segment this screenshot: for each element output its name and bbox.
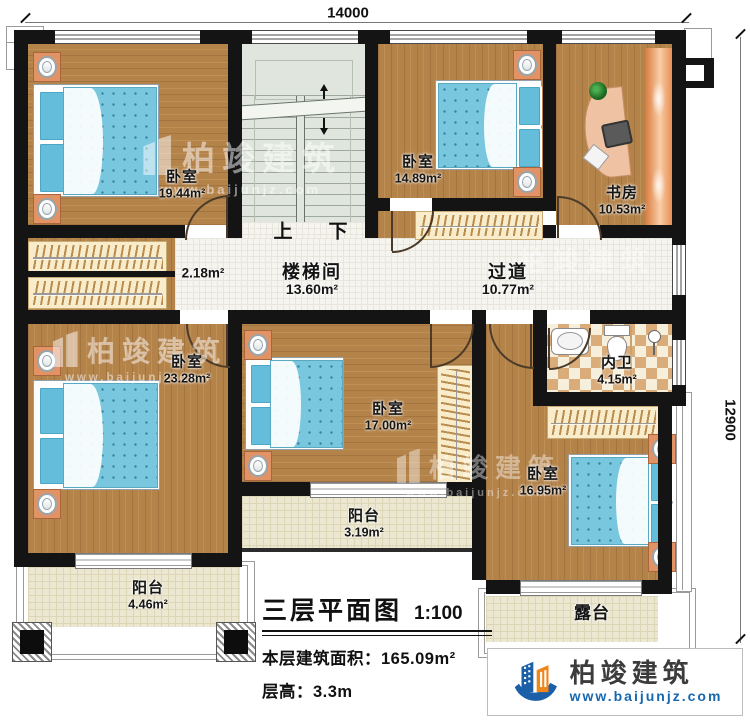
wall [378,198,390,211]
room-name: 露台 [574,603,610,622]
watermark-text: 柏竣建筑 [182,132,342,180]
watermark-url: www.baijunjz.com [515,281,658,293]
wall [228,310,430,324]
mattress [571,457,649,545]
watermark-logo-icon [394,449,422,485]
room-area: 19.44m² [159,186,206,200]
wall [365,44,378,238]
wall [590,310,686,324]
lamp-icon [37,493,57,515]
stair-up-label: 上 [273,217,292,244]
shower-head-icon [648,330,661,343]
watermark-logo-icon [50,331,80,369]
floor-area-value: 165.09m² [381,650,456,668]
watermark-text: 柏竣建筑 [518,240,654,279]
room-area: 4.46m² [128,597,168,611]
balcony-column [12,622,52,662]
toilet-tank [604,325,630,336]
lamp-icon [517,171,537,193]
terrace-railing-inner [484,592,690,654]
terrace-side-railing [676,392,692,592]
wall [533,392,686,406]
room-label-bedroom-left: 卧室 23.28m² [164,355,211,386]
floor-area-line: 本层建筑面积：165.09m² [262,645,492,669]
dimension-right-value: 12900 [722,396,739,444]
nightstand [513,50,541,80]
lamp-icon [37,198,57,220]
dimension-top-value: 14000 [324,5,372,22]
plan-scale: 1:100 [414,603,463,625]
room-area: 23.28m² [164,371,211,385]
stair-arrow-up-stem [323,86,325,99]
room-area: 4.15m² [597,372,637,386]
dimension-line-top [25,22,689,23]
room-name: 内卫 [597,356,637,373]
room-name: 阳台 [128,581,168,598]
wall [28,271,175,277]
terrace-side-railing-line [682,392,683,590]
wall [14,310,180,324]
window [55,30,200,44]
shower-cord [653,342,655,355]
room-label-study: 书房 10.53m² [599,186,646,217]
pillow [38,386,66,436]
wall [472,310,486,324]
wall [432,198,543,211]
wall [533,310,547,324]
lamp-icon [517,54,537,76]
room-label-hall: 2.18m² [182,265,225,280]
wall [543,225,556,238]
wall [14,30,28,567]
bed-topright [435,80,542,170]
study-cabinet [645,48,672,229]
door-leaf [548,328,550,368]
wall [28,225,185,238]
wall [658,406,672,594]
room-name: 卧室 [159,170,206,187]
bed-left [33,380,160,490]
mattress [438,83,517,168]
wall [242,482,310,496]
window [562,30,655,44]
title-underline [262,630,492,636]
dimension-line-right [740,37,741,643]
plan-title: 三层平面图 [262,591,402,627]
chimney-box-inner [686,65,704,81]
room-label-stairwell: 楼梯间 13.60m² [282,262,342,298]
room-name: 楼梯间 [282,262,342,282]
room-label-balcony-left: 阳台 4.46m² [128,581,168,612]
room-area: 16.95m² [520,483,567,497]
floor-height-value: 3.3m [313,683,353,701]
pillow [517,127,542,169]
stair-landing-outline [255,60,353,100]
company-logo-text: 柏竣建筑 www.baijunjz.com [570,660,723,703]
wall [14,553,75,567]
pillow [517,85,542,127]
floor-height-line: 层高：3.3m [262,678,492,702]
room-name: 书房 [599,186,646,203]
stair-down-label: 下 [328,217,347,244]
room-name: 阳台 [344,509,384,526]
company-logo: 柏竣建筑 www.baijunjz.com [487,648,743,716]
door-leaf [391,211,393,251]
room-name: 卧室 [164,355,211,372]
door-leaf [557,196,559,238]
window [390,30,527,44]
company-logo-icon [508,655,562,709]
nightstand [33,52,61,82]
window [672,245,686,295]
room-label-bedroom-topright: 卧室 14.89m² [395,155,442,186]
wall [600,225,672,238]
room-label-bathroom: 内卫 4.15m² [597,356,637,387]
room-area: 3.19m² [344,525,384,539]
bed-center [245,357,344,450]
nightstand [244,330,272,360]
wall [543,44,556,211]
room-name: 卧室 [520,467,567,484]
room-area: 2.18m² [182,265,225,280]
sliding-door [520,580,642,596]
room-name: 卧室 [365,402,412,419]
wardrobe-left-2 [28,277,167,309]
room-area: 10.77m² [482,282,534,298]
nightstand [33,489,61,519]
balcony-center-railing [242,548,472,552]
pillow [38,90,66,142]
balcony-column [216,622,256,662]
company-name: 柏竣建筑 [570,660,723,687]
pillow [38,436,66,486]
wall [190,553,242,567]
door-leaf [530,324,532,367]
watermark: 柏竣建筑 www.baijunjz.com [515,240,658,293]
lamp-icon [248,455,268,477]
sliding-door [75,553,192,569]
wardrobe-bedroom-right [547,406,660,439]
window [252,30,358,44]
company-website: www.baijunjz.com [570,688,723,704]
nightstand [513,167,541,197]
room-area: 13.60m² [282,282,342,298]
room-label-bedroom-right: 卧室 16.95m² [520,467,567,498]
pillow [38,142,66,194]
door-leaf [430,324,432,366]
floor-height-label: 层高： [262,683,313,701]
wardrobe-bedroom-topright [415,211,543,240]
room-label-bedroom-center: 卧室 17.00m² [365,402,412,433]
room-label-corridor: 过道 10.77m² [482,262,534,298]
lamp-icon [37,56,57,78]
wardrobe-left-1 [28,241,167,273]
room-name: 卧室 [395,155,442,172]
mattress [63,383,158,488]
room-label-terrace: 露台 [574,603,610,622]
room-area: 10.53m² [599,202,646,216]
room-area: 17.00m² [365,418,412,432]
mattress [270,360,343,448]
door-leaf [226,195,228,238]
room-area: 14.89m² [395,171,442,185]
floor-area-label: 本层建筑面积： [262,650,381,668]
window [672,340,686,385]
nightstand [33,194,61,224]
room-label-balcony-center: 阳台 3.19m² [344,509,384,540]
floor-plan-canvas: 上 下 [0,0,750,720]
title-block: 三层平面图 1:100 本层建筑面积：165.09m² 层高：3.3m [262,591,492,702]
nightstand [244,451,272,481]
room-name: 过道 [482,262,534,282]
room-label-bedroom-topleft: 卧室 19.44m² [159,170,206,201]
wall [640,580,672,594]
stair-edge-right [350,95,351,222]
lamp-icon [248,334,268,356]
plant-icon [589,82,607,100]
wall [228,324,242,553]
